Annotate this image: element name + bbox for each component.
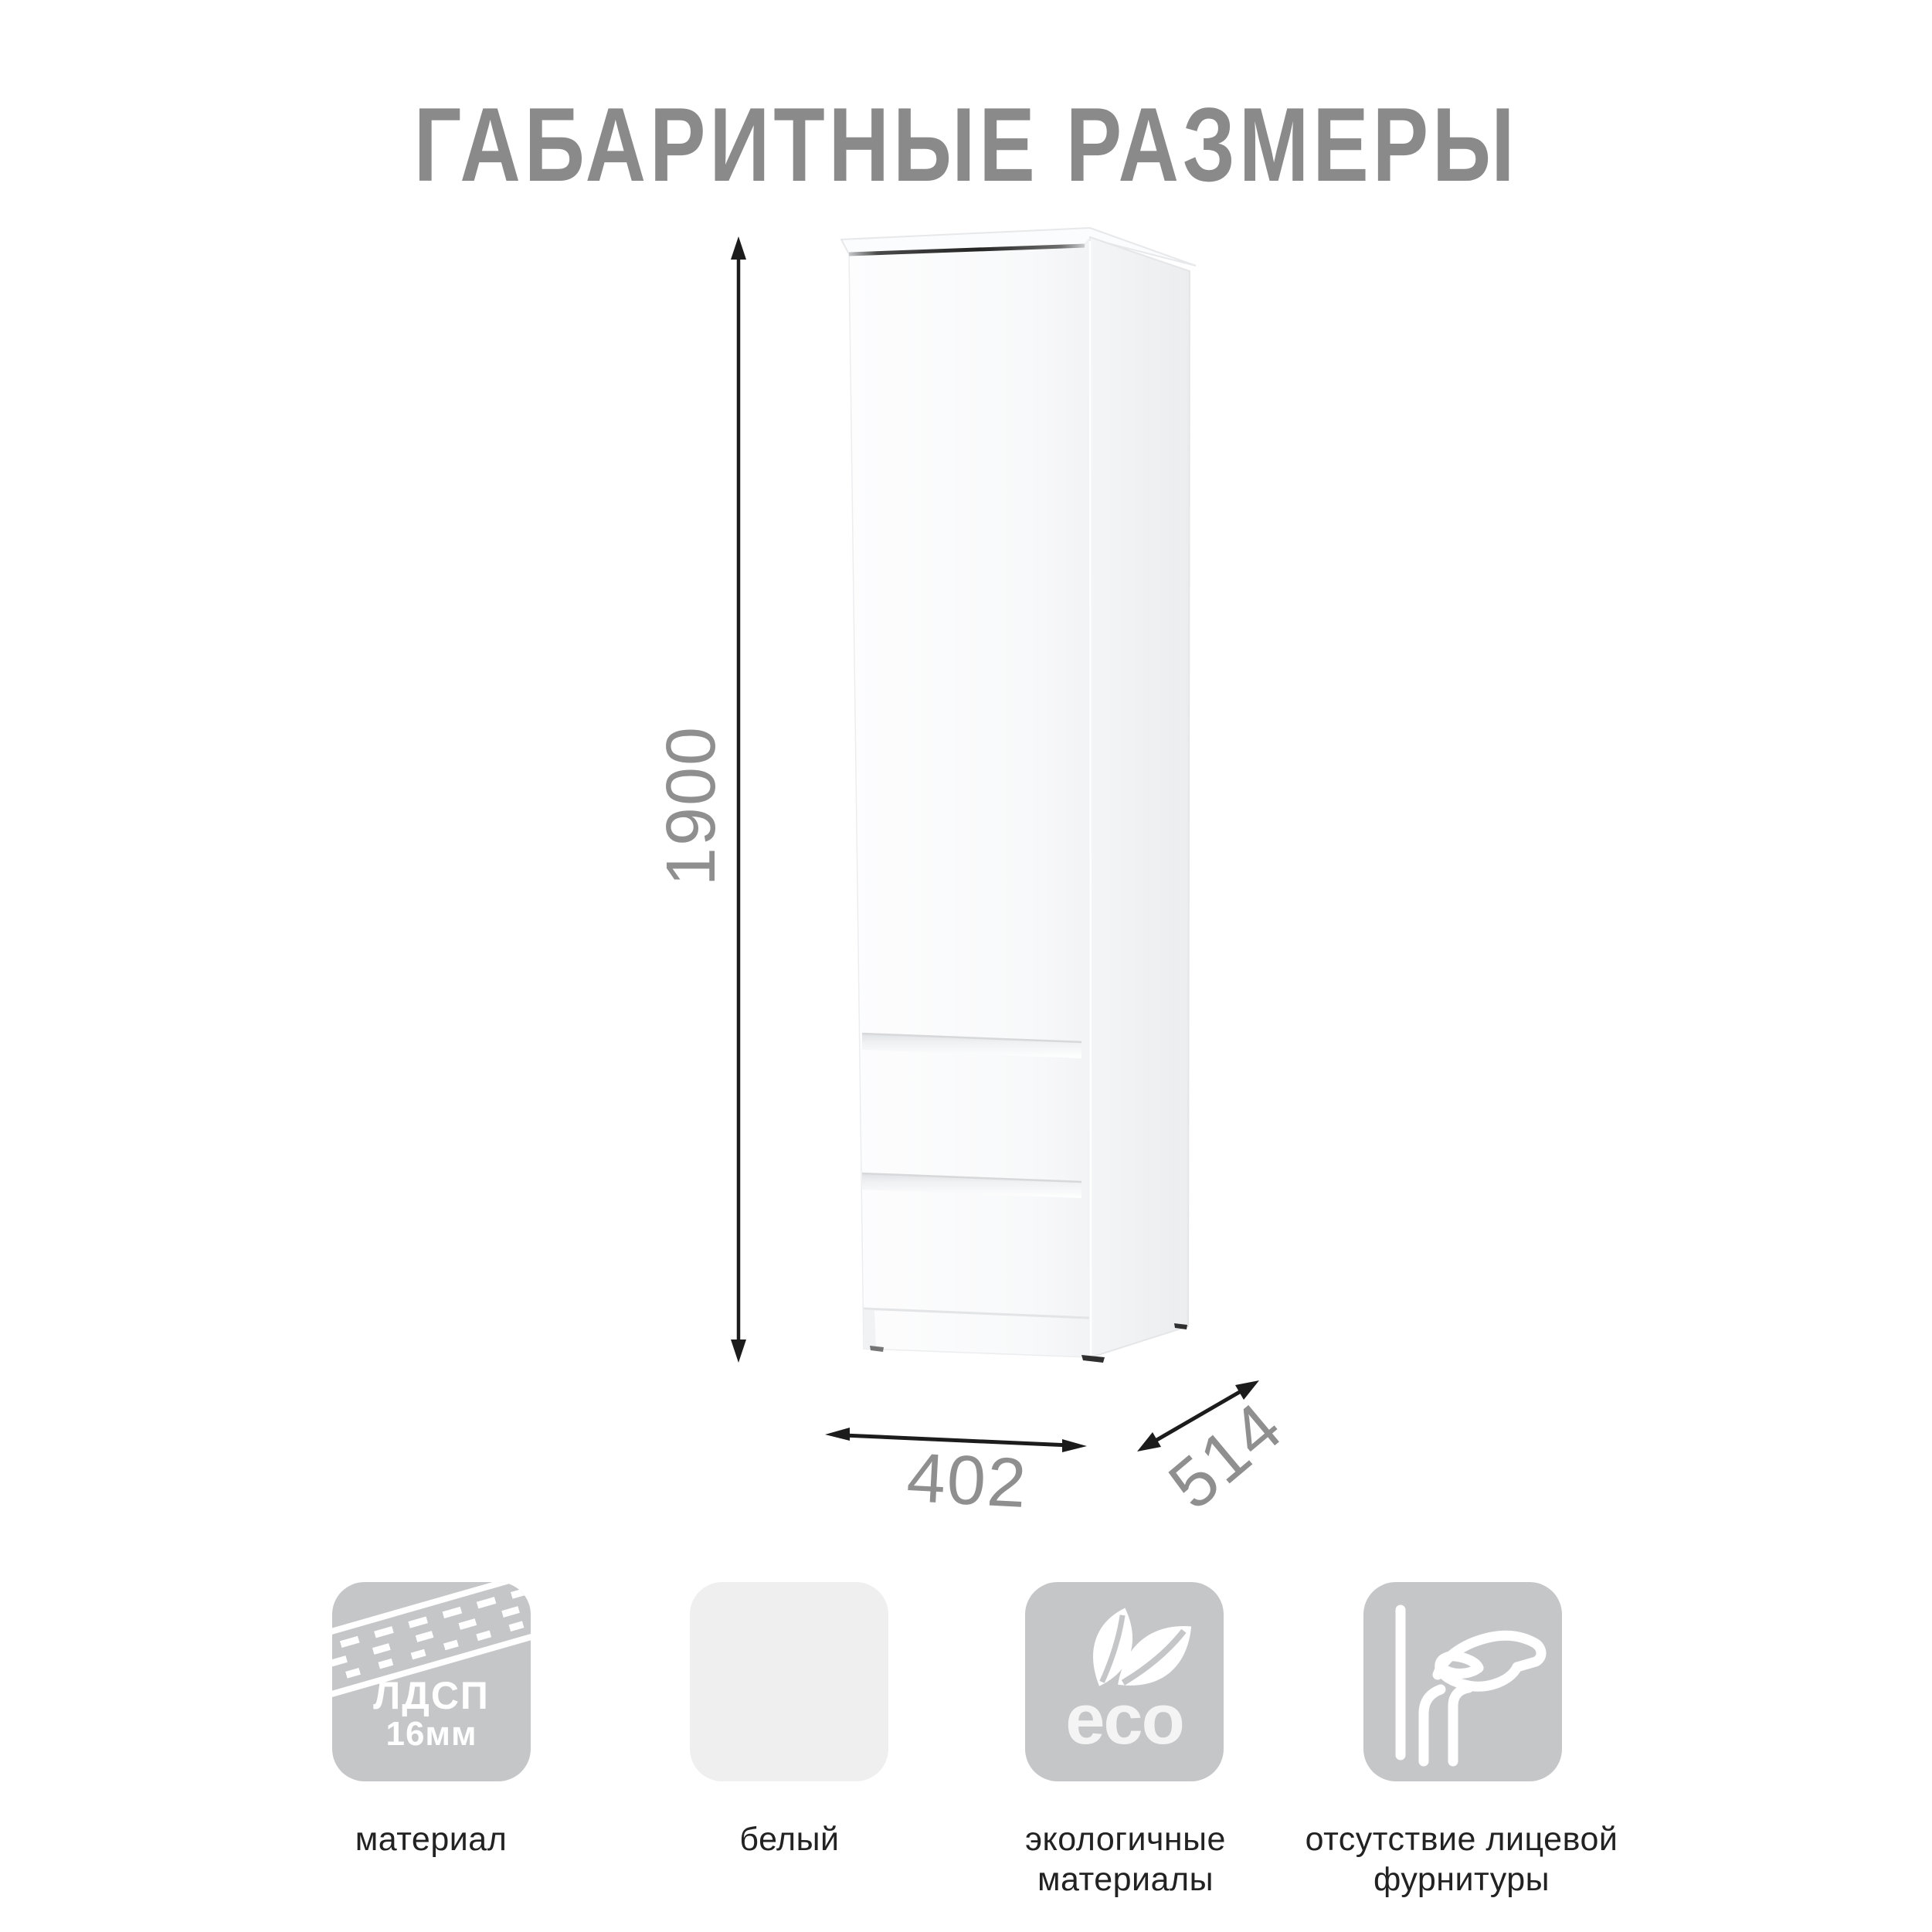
- material-badge-line1: ЛДСП: [332, 1673, 531, 1718]
- eco-feature-card: eco: [1025, 1582, 1224, 1781]
- hand-grip-icon: [1363, 1582, 1562, 1781]
- material-badge-line2: 16мм: [332, 1715, 531, 1754]
- height-dimension-arrow: [731, 236, 746, 1363]
- product-dimensions-infographic: ГАБАРИТНЫЕ РАЗМЕРЫ: [0, 0, 1932, 1932]
- cabinet-side-panel: [1090, 237, 1190, 1357]
- eco-feature-label: экологичные материалы: [963, 1820, 1288, 1900]
- eco-badge: eco: [1025, 1684, 1224, 1755]
- cabinet-illustration: [0, 0, 1932, 1932]
- front-corner-highlight: [1090, 241, 1091, 1356]
- color-feature-label: белый: [627, 1820, 952, 1860]
- plinth-left-step: [864, 1309, 876, 1349]
- material-feature-label: материал: [269, 1820, 593, 1860]
- no-hardware-feature-label: отсутствие лицевой фурнитуры: [1299, 1820, 1624, 1900]
- white-color-swatch: [690, 1582, 888, 1781]
- height-dimension-label: 1900: [657, 690, 726, 922]
- cabinet-foot-front-right: [1081, 1355, 1105, 1363]
- material-feature-card: ЛДСП 16мм: [332, 1582, 531, 1781]
- no-hardware-feature-card: [1363, 1582, 1562, 1781]
